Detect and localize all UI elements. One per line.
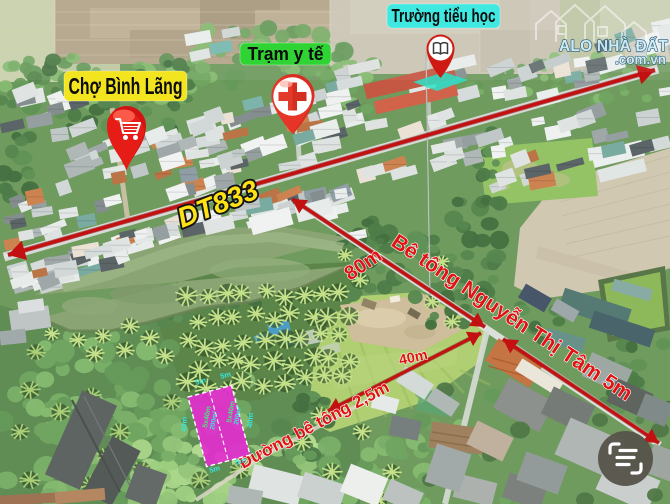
svg-text:40m: 40m: [245, 412, 255, 428]
svg-text:Chợ Bình Lãng: Chợ Bình Lãng: [69, 73, 183, 99]
svg-text:.com.vn: .com.vn: [615, 52, 666, 67]
svg-text:Trạm y tế: Trạm y tế: [248, 44, 325, 64]
svg-text:Trường tiểu học: Trường tiểu học: [392, 6, 496, 26]
svg-text:40m: 40m: [179, 416, 189, 432]
